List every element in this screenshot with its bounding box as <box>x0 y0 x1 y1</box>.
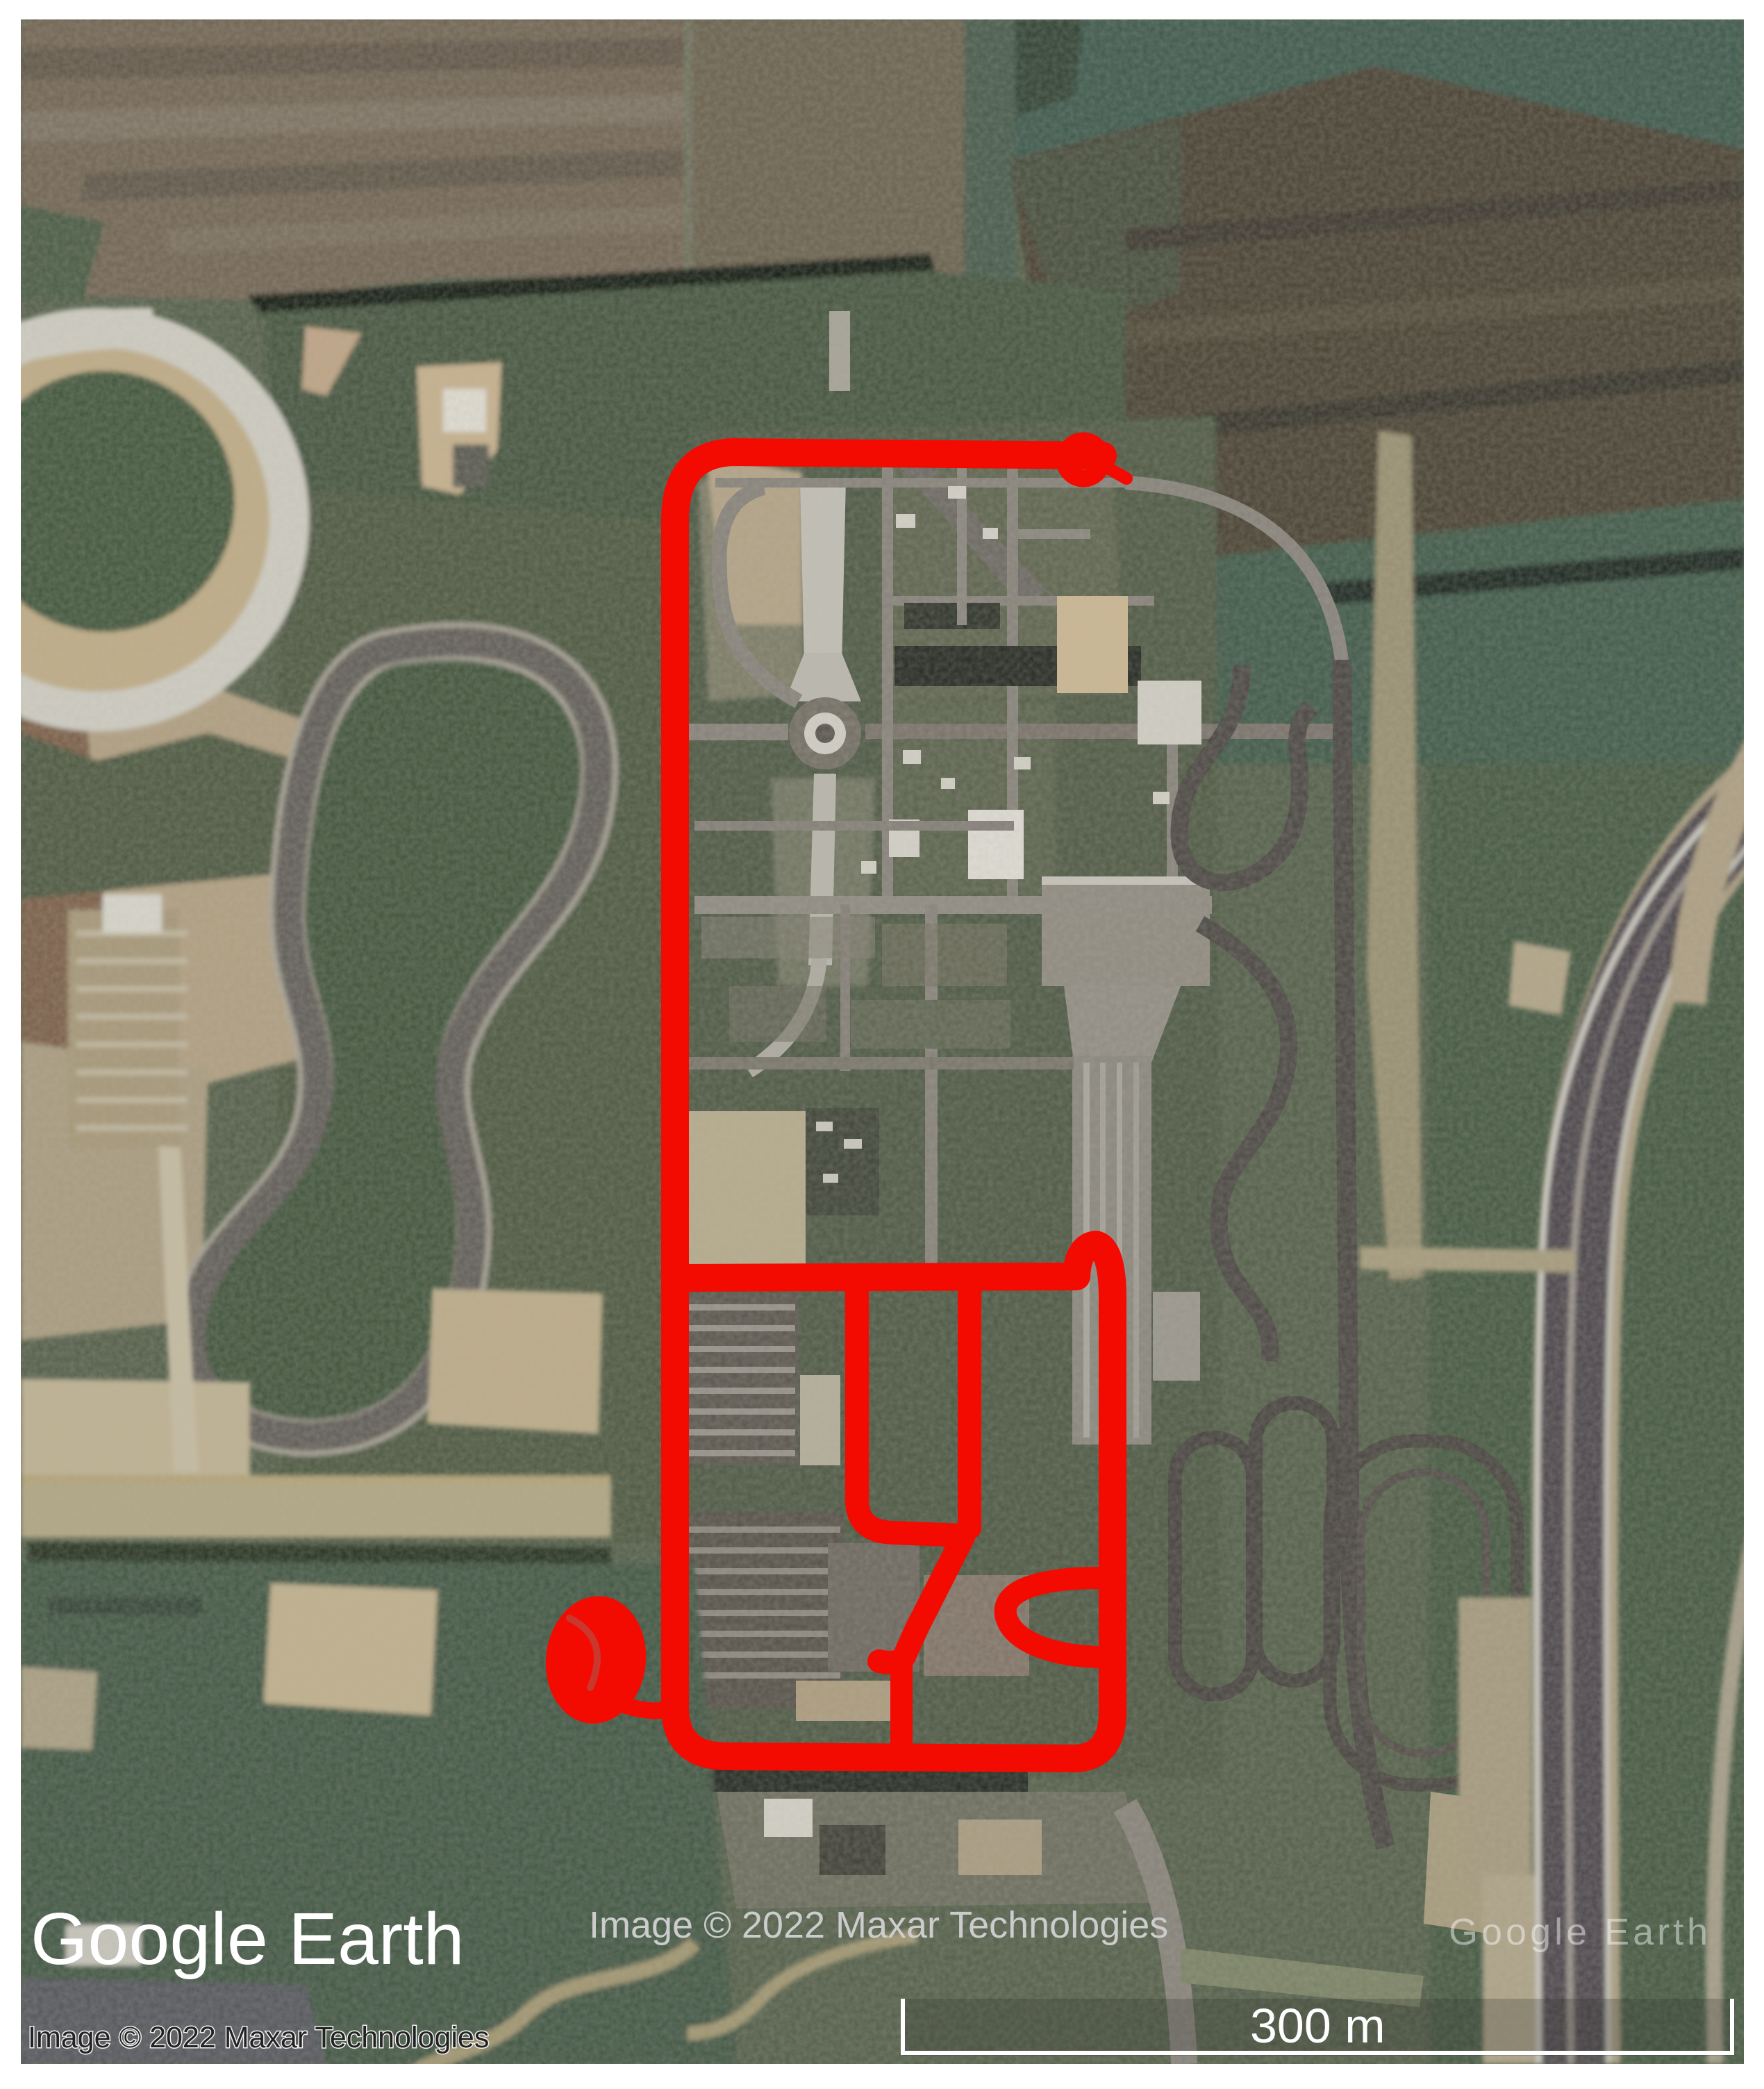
svg-text:Image © 2022 Maxar Technologie: Image © 2022 Maxar Technologies <box>589 1904 1168 1946</box>
svg-text:Image © 2022 Maxar Technologie: Image © 2022 Maxar Technologies <box>28 2021 489 2054</box>
svg-text:Google Earth: Google Earth <box>1449 1911 1711 1953</box>
svg-text:Google Earth: Google Earth <box>31 1898 465 1980</box>
svg-text:300 m: 300 m <box>1250 1999 1386 2053</box>
